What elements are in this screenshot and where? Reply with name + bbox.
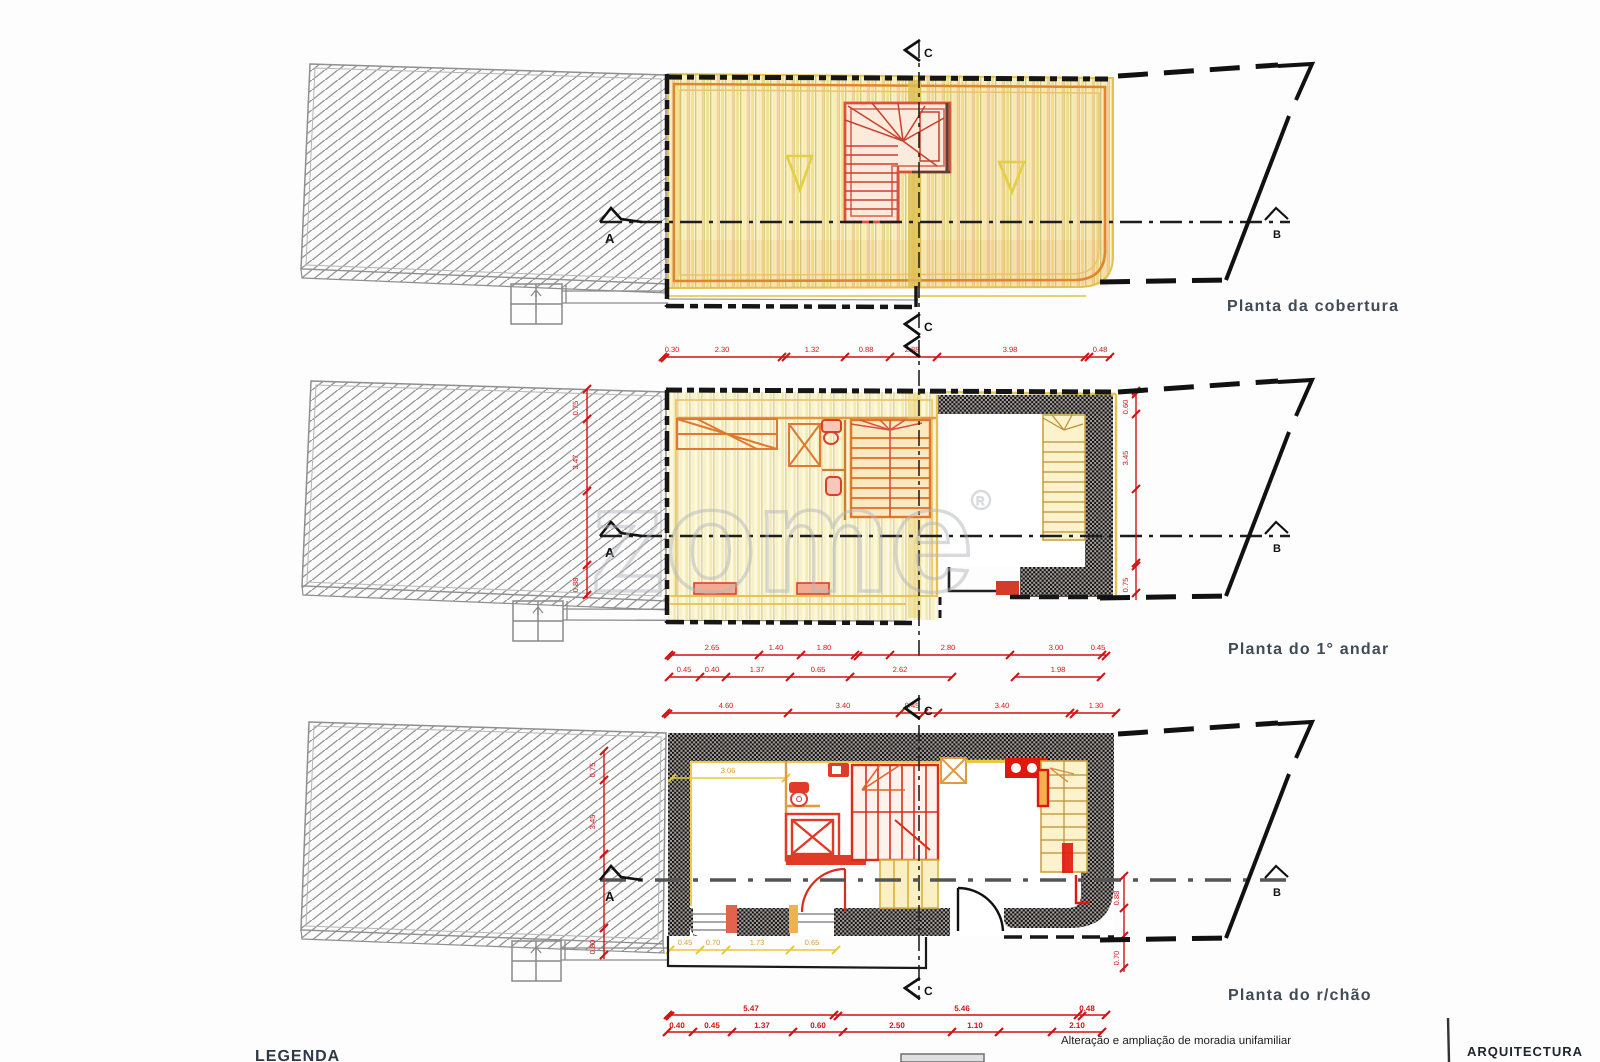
svg-text:0.88: 0.88 xyxy=(859,345,874,354)
svg-text:0.30: 0.30 xyxy=(665,345,680,354)
svg-text:5.46: 5.46 xyxy=(954,1004,970,1013)
svg-text:0.70: 0.70 xyxy=(1112,951,1121,966)
svg-text:2.62: 2.62 xyxy=(893,665,908,674)
svg-text:ARQUITECTURA: ARQUITECTURA xyxy=(1467,1044,1583,1059)
svg-text:0.45: 0.45 xyxy=(704,1021,720,1030)
svg-text:1.32: 1.32 xyxy=(805,345,820,354)
svg-text:3.98: 3.98 xyxy=(1003,345,1018,354)
svg-text:Planta da cobertura: Planta da cobertura xyxy=(1227,298,1399,315)
svg-text:0.40: 0.40 xyxy=(669,1021,685,1030)
svg-text:0.80: 0.80 xyxy=(588,940,597,955)
svg-text:0.48: 0.48 xyxy=(1079,1004,1095,1013)
svg-text:0.48: 0.48 xyxy=(1093,345,1108,354)
svg-text:3.06: 3.06 xyxy=(721,766,736,775)
svg-text:0.65: 0.65 xyxy=(805,938,820,947)
svg-text:A: A xyxy=(605,231,615,246)
svg-text:0.88: 0.88 xyxy=(571,578,580,593)
svg-text:2.10: 2.10 xyxy=(1069,1021,1085,1030)
svg-text:Planta do r/chão: Planta do r/chão xyxy=(1228,987,1372,1004)
svg-text:0.75: 0.75 xyxy=(571,401,580,416)
svg-text:0.40: 0.40 xyxy=(705,665,720,674)
svg-text:0.75: 0.75 xyxy=(588,763,597,778)
svg-text:0.65: 0.65 xyxy=(811,665,826,674)
svg-text:5.47: 5.47 xyxy=(743,1004,759,1013)
svg-text:Alteração e ampliação de morad: Alteração e ampliação de moradia unifami… xyxy=(1061,1035,1291,1047)
svg-text:0.60: 0.60 xyxy=(1121,400,1130,415)
svg-text:B: B xyxy=(1273,543,1281,555)
svg-text:0.45: 0.45 xyxy=(1091,643,1106,652)
svg-text:R: R xyxy=(976,494,985,508)
svg-text:1.80: 1.80 xyxy=(817,643,832,652)
svg-text:3.47: 3.47 xyxy=(571,455,580,470)
svg-text:0.45: 0.45 xyxy=(677,665,692,674)
svg-text:1.30: 1.30 xyxy=(1089,701,1104,710)
svg-text:C: C xyxy=(924,984,933,998)
svg-text:1.37: 1.37 xyxy=(750,665,765,674)
svg-text:2.65: 2.65 xyxy=(705,643,720,652)
svg-text:3.40: 3.40 xyxy=(836,701,851,710)
svg-text:C: C xyxy=(924,704,933,718)
svg-text:C: C xyxy=(924,320,933,334)
svg-text:2.80: 2.80 xyxy=(941,643,956,652)
svg-text:B: B xyxy=(1273,887,1281,899)
svg-text:1.73: 1.73 xyxy=(750,938,765,947)
svg-text:0.60: 0.60 xyxy=(810,1021,826,1030)
svg-text:2.50: 2.50 xyxy=(889,1021,905,1030)
svg-text:C: C xyxy=(924,46,933,60)
svg-text:0.75: 0.75 xyxy=(1121,578,1130,593)
svg-text:4.60: 4.60 xyxy=(719,701,734,710)
svg-text:3.45: 3.45 xyxy=(1121,451,1130,466)
svg-text:A: A xyxy=(605,889,615,904)
svg-text:3.45: 3.45 xyxy=(588,815,597,830)
svg-text:0.45: 0.45 xyxy=(678,938,693,947)
svg-text:0.70: 0.70 xyxy=(706,938,721,947)
svg-text:1.37: 1.37 xyxy=(754,1021,770,1030)
svg-text:3.00: 3.00 xyxy=(1049,643,1064,652)
svg-text:1.98: 1.98 xyxy=(1051,665,1066,674)
svg-text:1.10: 1.10 xyxy=(967,1021,983,1030)
svg-text:3.40: 3.40 xyxy=(995,701,1010,710)
svg-text:2.30: 2.30 xyxy=(715,345,730,354)
svg-text:LEGENDA: LEGENDA xyxy=(255,1048,340,1062)
svg-text:zome: zome xyxy=(590,455,973,623)
svg-text:0.88: 0.88 xyxy=(1112,891,1121,906)
svg-text:B: B xyxy=(1273,229,1281,241)
svg-text:Planta do 1° andar: Planta do 1° andar xyxy=(1228,641,1389,658)
svg-text:1.40: 1.40 xyxy=(769,643,784,652)
